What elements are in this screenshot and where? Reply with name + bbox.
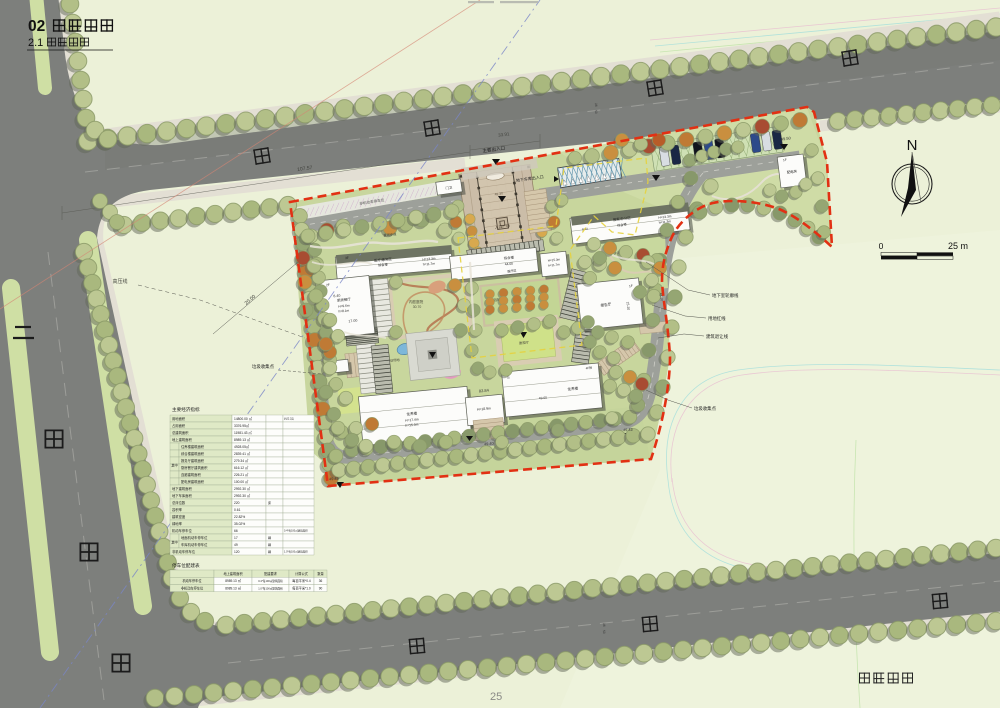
svg-text:0.4*每100㎡建筑面积: 0.4*每100㎡建筑面积 bbox=[258, 579, 283, 583]
svg-text:非机动车停车位: 非机动车停车位 bbox=[181, 585, 204, 590]
svg-text:220: 220 bbox=[234, 501, 240, 505]
svg-text:辆: 辆 bbox=[268, 549, 271, 554]
svg-text:门卫: 门卫 bbox=[445, 184, 453, 190]
svg-text:25: 25 bbox=[490, 691, 502, 703]
svg-text:2.1: 2.1 bbox=[28, 37, 43, 49]
svg-text:数量: 数量 bbox=[317, 571, 324, 576]
svg-text:机动车停车位: 机动车停车位 bbox=[172, 528, 192, 533]
svg-text:停车位配建表: 停车位配建表 bbox=[172, 562, 200, 569]
svg-text:车库机动车停车位: 车库机动车停车位 bbox=[181, 542, 208, 547]
svg-text:0.4*每100㎡建筑面积: 0.4*每100㎡建筑面积 bbox=[284, 529, 308, 533]
svg-text:每百平米*0.4: 每百平米*0.4 bbox=[292, 578, 311, 583]
svg-text:2992.30 ㎡: 2992.30 ㎡ bbox=[234, 493, 251, 498]
svg-text:1F: 1F bbox=[783, 158, 787, 162]
svg-text:49.43: 49.43 bbox=[623, 428, 633, 433]
svg-text:26: 26 bbox=[602, 623, 606, 627]
svg-text:综合楼建筑面积: 综合楼建筑面积 bbox=[181, 451, 205, 456]
svg-text:17: 17 bbox=[234, 536, 238, 540]
svg-text:连廊建筑面积: 连廊建筑面积 bbox=[181, 472, 201, 477]
svg-text:49: 49 bbox=[234, 543, 238, 547]
svg-text:82.84: 82.84 bbox=[479, 387, 490, 393]
svg-text:绿地率: 绿地率 bbox=[172, 521, 183, 526]
svg-text:8.40: 8.40 bbox=[333, 294, 340, 299]
svg-text:616.12 ㎡: 616.12 ㎡ bbox=[234, 465, 249, 470]
svg-text:地下室轮廓线: 地下室轮廓线 bbox=[712, 292, 739, 299]
svg-text:1.0*每100㎡建筑面积: 1.0*每100㎡建筑面积 bbox=[258, 586, 283, 590]
svg-text:地下车库面积: 地下车库面积 bbox=[172, 493, 192, 498]
svg-text:地上建筑面积: 地上建筑面积 bbox=[223, 571, 243, 576]
svg-text:49.60: 49.60 bbox=[539, 396, 548, 401]
svg-text:配电房建筑面积: 配电房建筑面积 bbox=[181, 479, 205, 484]
svg-text:垃圾收集点: 垃圾收集点 bbox=[694, 405, 717, 412]
svg-text:地面机动车停车位: 地面机动车停车位 bbox=[181, 535, 208, 540]
svg-text:机动车停车位: 机动车停车位 bbox=[182, 578, 202, 583]
svg-text:26: 26 bbox=[594, 103, 598, 107]
svg-text:容积率: 容积率 bbox=[172, 507, 183, 512]
svg-text:综合楼: 综合楼 bbox=[378, 262, 389, 268]
svg-text:120: 120 bbox=[234, 550, 240, 554]
svg-text:1F: 1F bbox=[629, 284, 633, 288]
svg-text:66: 66 bbox=[234, 529, 238, 533]
svg-text:4928.05㎡: 4928.05㎡ bbox=[234, 444, 250, 449]
svg-text:床: 床 bbox=[268, 500, 271, 505]
svg-text:50: 50 bbox=[602, 630, 606, 634]
svg-text:50: 50 bbox=[594, 110, 598, 114]
svg-text:2839.41 ㎡: 2839.41 ㎡ bbox=[234, 451, 251, 456]
svg-text:计算公式: 计算公式 bbox=[295, 571, 309, 576]
svg-text:高压线: 高压线 bbox=[112, 278, 127, 285]
svg-text:总建筑面积: 总建筑面积 bbox=[172, 430, 189, 435]
svg-text:建筑退让线: 建筑退让线 bbox=[706, 333, 729, 340]
svg-text:8989.13 ㎡: 8989.13 ㎡ bbox=[225, 585, 241, 590]
svg-text:30.70: 30.70 bbox=[413, 305, 422, 309]
svg-text:辆: 辆 bbox=[268, 542, 271, 547]
svg-text:其中: 其中 bbox=[171, 462, 177, 467]
svg-text:8989.13 ㎡: 8989.13 ㎡ bbox=[234, 437, 251, 442]
svg-text:建筑密度: 建筑密度 bbox=[172, 514, 186, 519]
svg-text:报务厅建筑面积: 报务厅建筑面积 bbox=[181, 458, 205, 463]
svg-text:2992.30 ㎡: 2992.30 ㎡ bbox=[234, 486, 251, 491]
svg-text:配建要求: 配建要求 bbox=[264, 571, 278, 576]
svg-text:占用面积: 占用面积 bbox=[172, 423, 186, 428]
svg-text:主要经济指标: 主要经济指标 bbox=[172, 406, 200, 413]
svg-text:279.34 ㎡: 279.34 ㎡ bbox=[234, 458, 249, 463]
svg-text:医疗区: 医疗区 bbox=[507, 268, 516, 274]
svg-text:14800.00 ㎡: 14800.00 ㎡ bbox=[234, 416, 253, 421]
svg-text:3376.95㎡: 3376.95㎡ bbox=[234, 423, 250, 428]
svg-text:地上建筑面积: 地上建筑面积 bbox=[172, 437, 192, 442]
svg-text:8989.13 ㎡: 8989.13 ㎡ bbox=[225, 578, 241, 583]
svg-text:0.61: 0.61 bbox=[234, 508, 241, 512]
svg-text:90: 90 bbox=[319, 586, 323, 590]
svg-text:N: N bbox=[907, 137, 918, 154]
svg-text:22.82%: 22.82% bbox=[234, 515, 245, 519]
svg-text:辆: 辆 bbox=[268, 535, 271, 540]
svg-text:总床位数: 总床位数 bbox=[172, 500, 186, 505]
svg-text:2F: 2F bbox=[326, 283, 330, 287]
svg-text:02: 02 bbox=[28, 18, 45, 35]
svg-text:49.45: 49.45 bbox=[329, 477, 339, 482]
svg-text:4F附: 4F附 bbox=[585, 365, 592, 371]
svg-text:1.0*每100㎡建筑面积: 1.0*每100㎡建筑面积 bbox=[284, 550, 308, 554]
svg-text:11981.43 ㎡: 11981.43 ㎡ bbox=[234, 430, 252, 435]
svg-text:住养楼建筑面积: 住养楼建筑面积 bbox=[181, 444, 205, 449]
svg-text:非机动车停车位: 非机动车停车位 bbox=[172, 549, 196, 554]
svg-text:100.00 ㎡: 100.00 ㎡ bbox=[234, 479, 249, 484]
svg-text:0: 0 bbox=[879, 241, 884, 251]
svg-text:垃圾收集点: 垃圾收集点 bbox=[252, 363, 275, 370]
svg-text:内庭庭院: 内庭庭院 bbox=[409, 299, 424, 304]
svg-text:地下建筑面积: 地下建筑面积 bbox=[172, 486, 192, 491]
svg-text:226.21 ㎡: 226.21 ㎡ bbox=[234, 472, 249, 477]
svg-text:用地面积: 用地面积 bbox=[172, 416, 186, 421]
svg-text:3F: 3F bbox=[345, 256, 349, 260]
svg-text:25 m: 25 m bbox=[948, 241, 968, 251]
svg-text:每百平米*1.0: 每百平米*1.0 bbox=[292, 585, 311, 590]
svg-text:约22.2亩: 约22.2亩 bbox=[284, 417, 294, 421]
svg-text:49.40: 49.40 bbox=[484, 442, 494, 447]
svg-text:厨房餐厅建筑面积: 厨房餐厅建筑面积 bbox=[181, 465, 208, 470]
svg-text:其中: 其中 bbox=[171, 539, 177, 544]
svg-text:35.02%: 35.02% bbox=[234, 522, 245, 526]
svg-text:36: 36 bbox=[319, 579, 323, 583]
svg-text:用地红线: 用地红线 bbox=[708, 315, 726, 322]
